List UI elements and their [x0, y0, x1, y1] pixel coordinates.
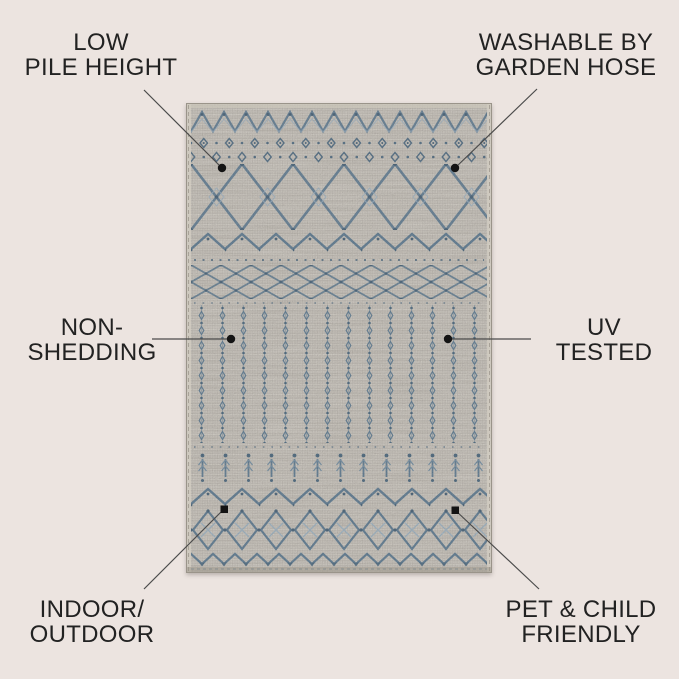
callout-label-indoor-outdoor: INDOOR/ OUTDOOR	[30, 597, 155, 647]
callout-text-line: LOW	[25, 30, 178, 55]
callout-text-line: OUTDOOR	[30, 622, 155, 647]
callout-label-pet-child: PET & CHILD FRIENDLY	[506, 597, 657, 647]
rug-image	[186, 103, 492, 573]
callout-text-line: NON-	[27, 315, 156, 340]
callout-label-low-pile-height: LOW PILE HEIGHT	[25, 30, 178, 80]
product-infographic: LOW PILE HEIGHT WASHABLE BY GARDEN HOSE …	[0, 0, 679, 679]
callout-text-line: PILE HEIGHT	[25, 55, 178, 80]
callout-text-line: PET & CHILD	[506, 597, 657, 622]
callout-text-line: WASHABLE BY	[476, 30, 657, 55]
callout-text-line: GARDEN HOSE	[476, 55, 657, 80]
callout-label-washable: WASHABLE BY GARDEN HOSE	[476, 30, 657, 80]
callout-text-line: UV	[556, 315, 652, 340]
callout-label-non-shedding: NON- SHEDDING	[27, 315, 156, 365]
callout-text-line: INDOOR/	[30, 597, 155, 622]
rug-illustration	[186, 103, 492, 573]
callout-text-line: SHEDDING	[27, 340, 156, 365]
callout-text-line: FRIENDLY	[506, 622, 657, 647]
callout-label-uv-tested: UV TESTED	[556, 315, 652, 365]
callout-text-line: TESTED	[556, 340, 652, 365]
